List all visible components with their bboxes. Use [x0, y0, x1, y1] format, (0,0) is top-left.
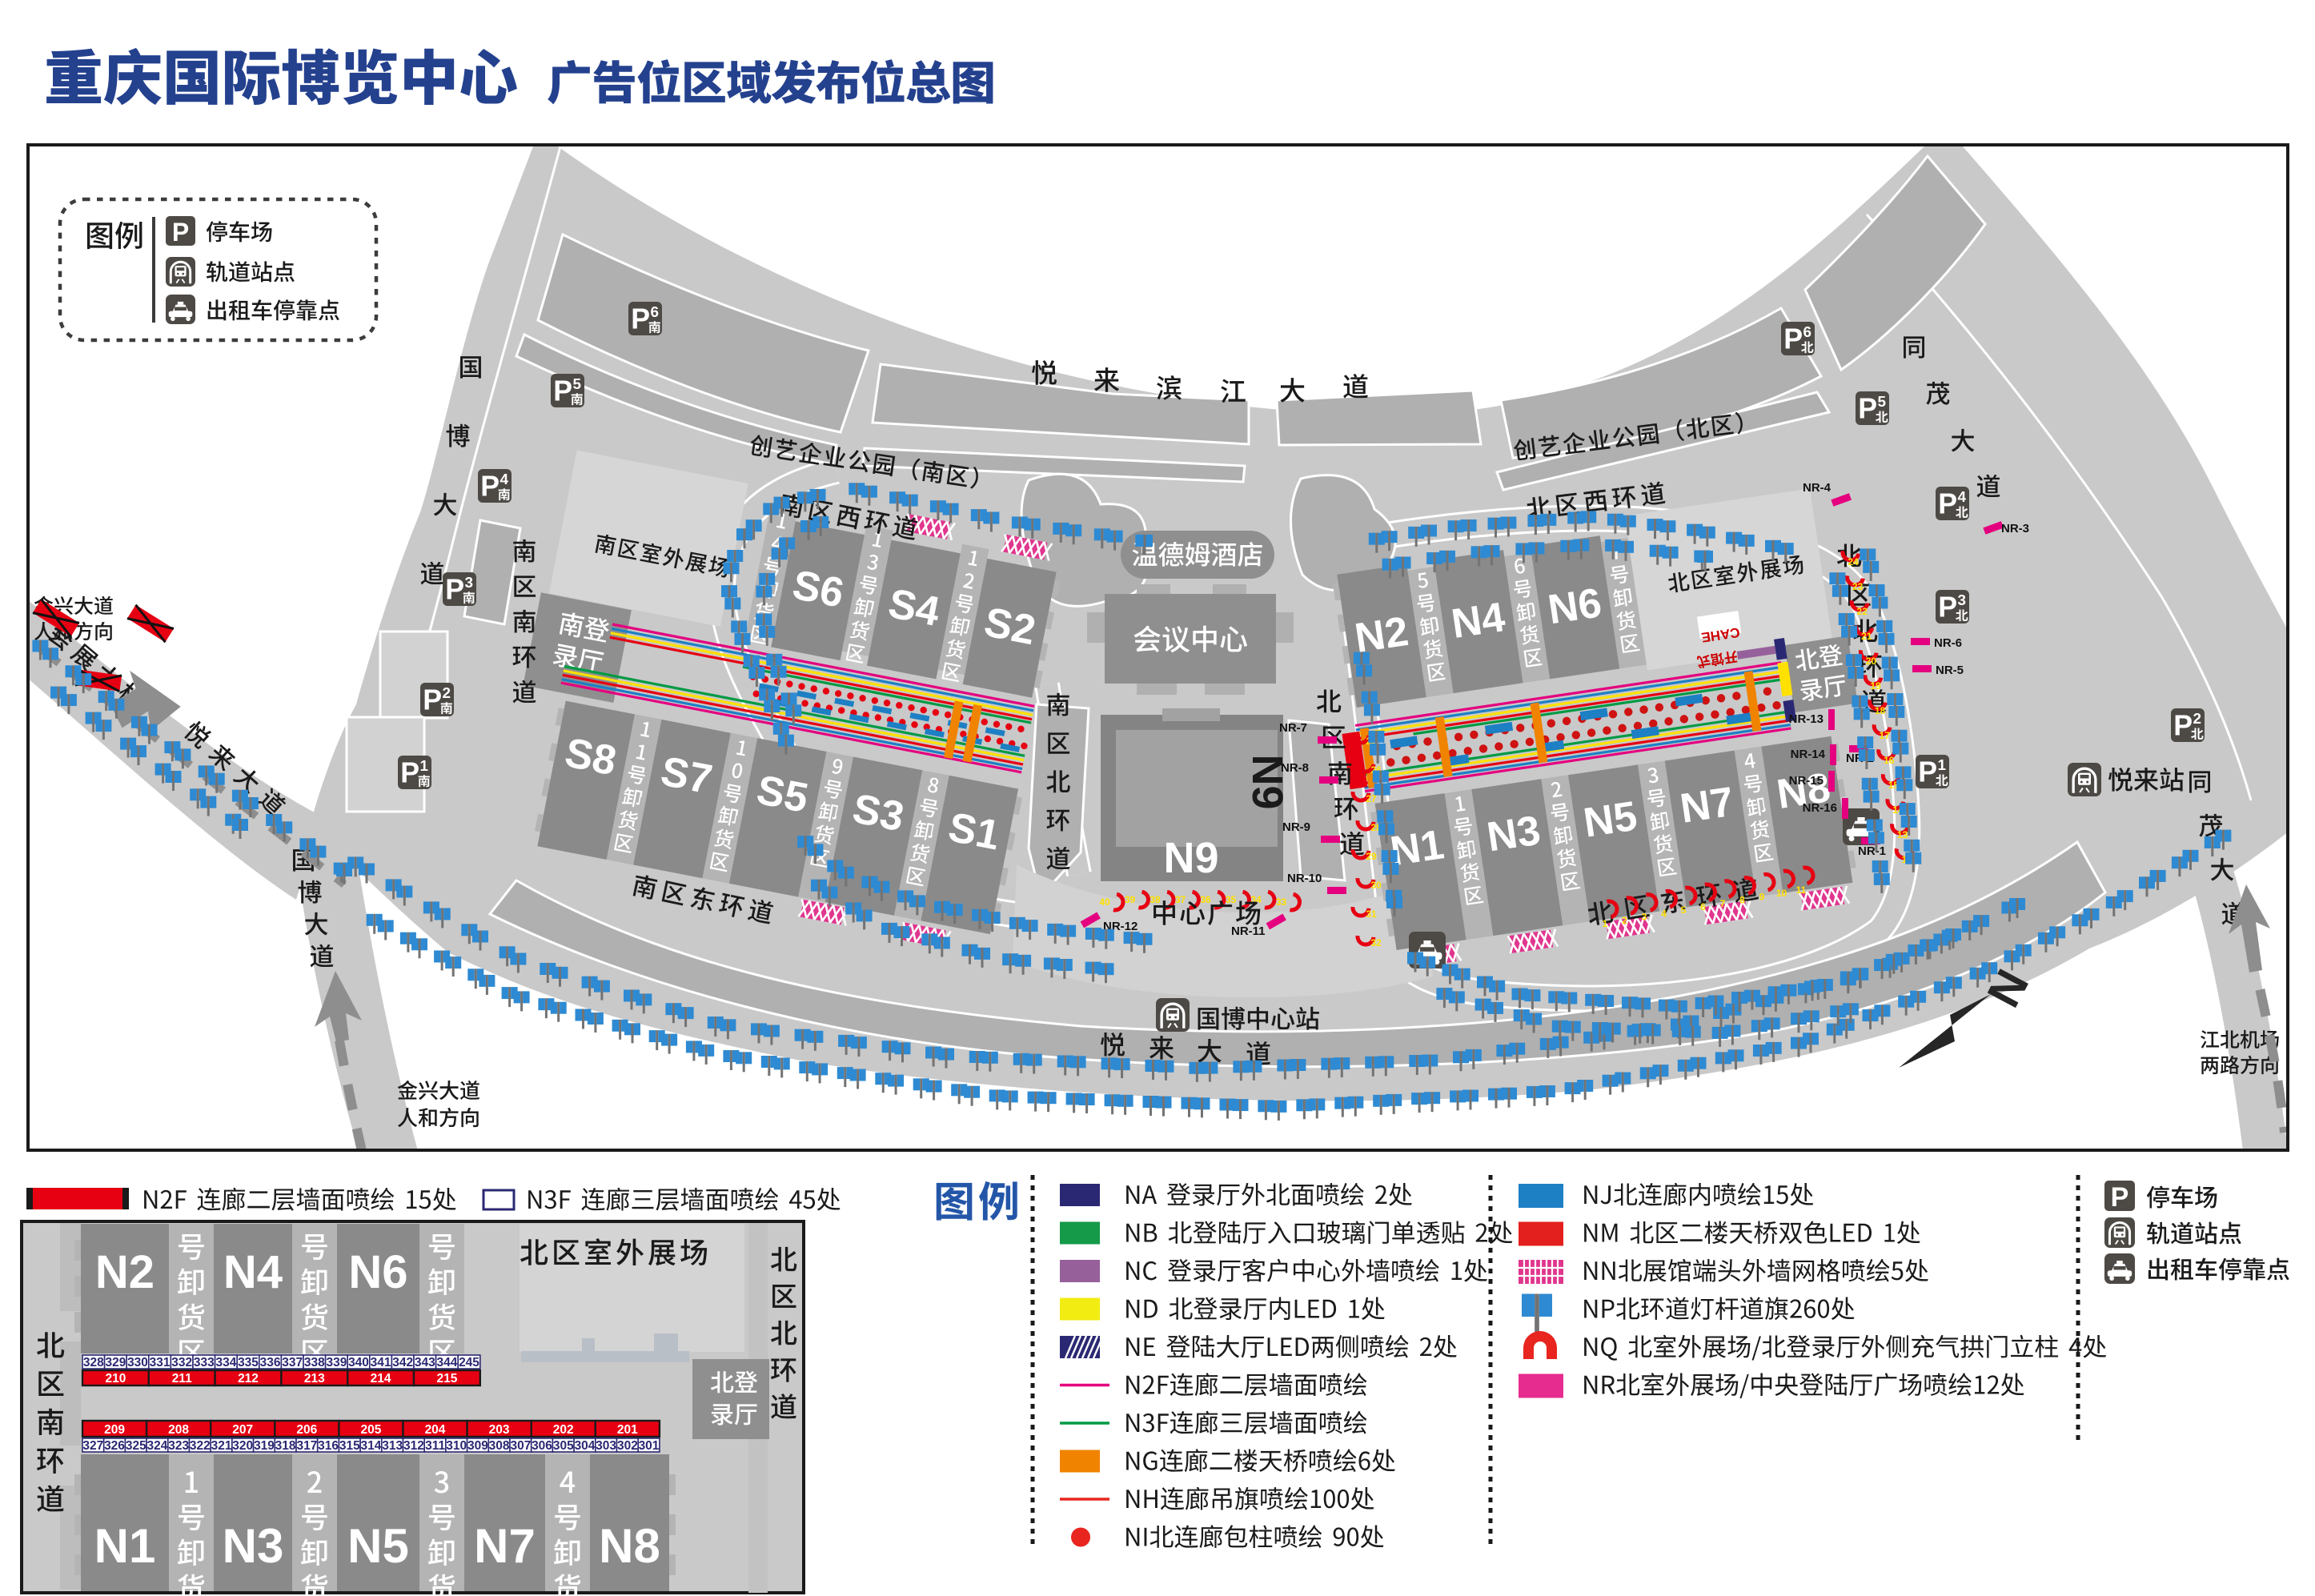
svg-text:N7: N7	[1677, 779, 1736, 832]
svg-text:NR-14: NR-14	[1791, 748, 1826, 761]
svg-text:N6: N6	[348, 1246, 407, 1298]
svg-text:329: 329	[105, 1356, 126, 1369]
svg-text:N2: N2	[95, 1246, 154, 1298]
svg-text:P: P	[631, 303, 650, 335]
svg-text:4: 4	[1661, 908, 1667, 919]
svg-text:301: 301	[639, 1439, 660, 1453]
svg-text:341: 341	[371, 1356, 391, 1369]
svg-text:P: P	[2111, 1182, 2129, 1213]
svg-text:S4: S4	[885, 580, 944, 636]
svg-text:307: 307	[510, 1439, 531, 1453]
svg-text:P: P	[480, 471, 500, 503]
svg-text:30: 30	[1370, 880, 1382, 891]
svg-text:NR-16: NR-16	[1803, 801, 1837, 815]
svg-text:342: 342	[392, 1356, 413, 1369]
svg-text:NR-9: NR-9	[1282, 820, 1310, 834]
svg-text:208: 208	[168, 1423, 189, 1437]
svg-text:NR-11: NR-11	[1231, 924, 1266, 938]
svg-text:22: 22	[1857, 606, 1868, 617]
svg-text:33: 33	[1276, 896, 1287, 908]
svg-text:N8: N8	[599, 1519, 660, 1573]
svg-text:NR-13: NR-13	[1789, 712, 1824, 726]
svg-text:336: 336	[260, 1356, 281, 1369]
svg-text:328: 328	[83, 1356, 104, 1369]
svg-text:32: 32	[1370, 937, 1382, 948]
svg-text:N3: N3	[223, 1519, 284, 1573]
svg-text:310: 310	[446, 1439, 467, 1453]
svg-text:326: 326	[104, 1439, 125, 1453]
svg-text:305: 305	[553, 1439, 574, 1453]
svg-text:1: 1	[1603, 918, 1608, 929]
svg-text:37: 37	[1175, 894, 1186, 905]
svg-text:P: P	[445, 574, 464, 606]
svg-text:5: 5	[1878, 394, 1887, 411]
svg-text:215: 215	[436, 1372, 457, 1385]
svg-text:N3: N3	[1484, 807, 1543, 860]
svg-text:3: 3	[1642, 912, 1647, 923]
svg-text:2: 2	[443, 685, 451, 702]
svg-text:331: 331	[150, 1356, 171, 1369]
svg-text:S2: S2	[981, 599, 1040, 654]
svg-text:S3: S3	[849, 785, 908, 840]
svg-text:313: 313	[382, 1439, 403, 1453]
svg-text:320: 320	[232, 1439, 253, 1453]
svg-text:210: 210	[105, 1372, 126, 1385]
svg-text:206: 206	[296, 1423, 317, 1437]
svg-text:6: 6	[1700, 901, 1706, 912]
svg-text:31: 31	[1366, 908, 1377, 920]
svg-text:NR-8: NR-8	[1281, 761, 1309, 775]
svg-text:N4: N4	[1449, 594, 1508, 648]
svg-text:339: 339	[326, 1356, 347, 1369]
svg-text:P: P	[423, 684, 442, 716]
svg-text:N6: N6	[1545, 579, 1604, 633]
svg-text:10: 10	[1776, 888, 1787, 899]
svg-text:P: P	[400, 757, 419, 789]
svg-text:9: 9	[1759, 891, 1765, 902]
svg-text:NR-4: NR-4	[1803, 481, 1832, 495]
svg-text:24: 24	[1848, 556, 1859, 567]
svg-text:P: P	[1858, 393, 1877, 425]
svg-text:304: 304	[575, 1439, 596, 1453]
svg-text:29: 29	[1366, 851, 1377, 862]
svg-text:330: 330	[127, 1356, 148, 1369]
svg-text:211: 211	[172, 1372, 192, 1385]
svg-text:311: 311	[425, 1439, 445, 1453]
svg-text:5: 5	[573, 376, 582, 393]
svg-text:19: 19	[1870, 680, 1881, 692]
svg-text:4: 4	[1958, 489, 1967, 506]
svg-text:317: 317	[296, 1439, 317, 1453]
svg-text:NR-15: NR-15	[1789, 774, 1824, 788]
svg-text:23: 23	[1852, 581, 1864, 592]
svg-text:N5: N5	[1581, 793, 1640, 847]
svg-text:1: 1	[420, 758, 429, 775]
svg-text:13: 13	[1897, 829, 1908, 840]
svg-text:209: 209	[104, 1423, 125, 1437]
svg-text:P: P	[1938, 488, 1957, 520]
svg-text:S5: S5	[753, 767, 812, 822]
svg-text:S8: S8	[561, 729, 620, 784]
svg-text:318: 318	[275, 1439, 296, 1453]
svg-text:40: 40	[1099, 896, 1110, 908]
svg-text:312: 312	[403, 1439, 424, 1453]
svg-text:3: 3	[465, 575, 474, 591]
svg-text:P: P	[172, 218, 189, 247]
svg-text:207: 207	[232, 1423, 253, 1437]
svg-text:20: 20	[1866, 656, 1877, 667]
svg-text:302: 302	[617, 1439, 638, 1453]
svg-text:333: 333	[194, 1356, 215, 1369]
svg-text:NR-1: NR-1	[1858, 844, 1886, 858]
svg-text:7: 7	[1720, 898, 1726, 909]
svg-text:18: 18	[1875, 705, 1886, 716]
svg-text:316: 316	[318, 1439, 339, 1453]
svg-text:21: 21	[1861, 631, 1872, 642]
svg-text:212: 212	[238, 1372, 259, 1385]
svg-text:324: 324	[146, 1439, 167, 1453]
svg-text:344: 344	[436, 1356, 457, 1369]
svg-text:213: 213	[304, 1372, 325, 1385]
svg-text:6: 6	[1803, 324, 1812, 341]
svg-text:315: 315	[339, 1439, 360, 1453]
svg-text:343: 343	[415, 1356, 435, 1369]
svg-text:327: 327	[82, 1439, 103, 1453]
svg-text:319: 319	[254, 1439, 275, 1453]
svg-text:38: 38	[1149, 894, 1161, 905]
svg-text:N4: N4	[223, 1246, 283, 1298]
svg-text:2: 2	[2193, 711, 2202, 728]
svg-text:5: 5	[1681, 904, 1687, 916]
svg-text:309: 309	[467, 1439, 488, 1453]
svg-text:S6: S6	[788, 562, 848, 617]
svg-text:35: 35	[1226, 894, 1237, 905]
svg-text:201: 201	[617, 1423, 638, 1437]
svg-text:NR-3: NR-3	[2001, 522, 2029, 535]
svg-text:323: 323	[168, 1439, 189, 1453]
svg-text:322: 322	[190, 1439, 211, 1453]
svg-text:325: 325	[126, 1439, 146, 1453]
svg-text:39: 39	[1125, 894, 1136, 905]
svg-text:214: 214	[371, 1372, 391, 1385]
svg-text:338: 338	[304, 1356, 325, 1369]
svg-text:6: 6	[651, 304, 660, 321]
svg-text:P: P	[1783, 323, 1803, 355]
svg-text:P: P	[553, 375, 572, 407]
svg-text:S1: S1	[945, 804, 1004, 859]
svg-text:N9: N9	[1163, 834, 1218, 882]
svg-text:P: P	[1918, 756, 1937, 788]
svg-text:P: P	[2173, 710, 2193, 742]
svg-text:204: 204	[425, 1423, 446, 1437]
svg-text:3: 3	[1958, 592, 1967, 609]
svg-text:1: 1	[1938, 757, 1947, 774]
svg-text:N1: N1	[94, 1519, 156, 1573]
svg-text:337: 337	[282, 1356, 303, 1369]
svg-text:NR-6: NR-6	[1934, 636, 1962, 650]
svg-text:308: 308	[489, 1439, 510, 1453]
svg-text:314: 314	[360, 1439, 381, 1453]
svg-text:NR-5: NR-5	[1936, 664, 1964, 677]
svg-text:NR-7: NR-7	[1279, 721, 1307, 735]
svg-text:203: 203	[489, 1423, 510, 1437]
svg-text:P: P	[1938, 591, 1957, 624]
svg-text:202: 202	[553, 1423, 574, 1437]
svg-text:332: 332	[171, 1356, 192, 1369]
svg-text:N5: N5	[347, 1519, 409, 1573]
svg-text:306: 306	[532, 1439, 552, 1453]
svg-text:303: 303	[596, 1439, 616, 1453]
svg-text:334: 334	[215, 1356, 236, 1369]
svg-text:321: 321	[211, 1439, 232, 1453]
svg-text:2: 2	[1622, 915, 1627, 926]
svg-text:NR-10: NR-10	[1287, 872, 1322, 885]
svg-text:17: 17	[1880, 730, 1891, 741]
svg-text:16: 16	[1884, 755, 1895, 766]
svg-text:N7: N7	[474, 1519, 536, 1573]
svg-text:S7: S7	[657, 748, 716, 804]
svg-text:205: 205	[360, 1423, 381, 1437]
svg-text:340: 340	[348, 1356, 369, 1369]
svg-text:335: 335	[238, 1356, 259, 1369]
svg-text:245: 245	[459, 1356, 479, 1369]
svg-text:36: 36	[1200, 894, 1211, 905]
svg-text:11: 11	[1796, 884, 1807, 896]
svg-text:8: 8	[1739, 895, 1745, 906]
svg-text:4: 4	[500, 471, 509, 488]
